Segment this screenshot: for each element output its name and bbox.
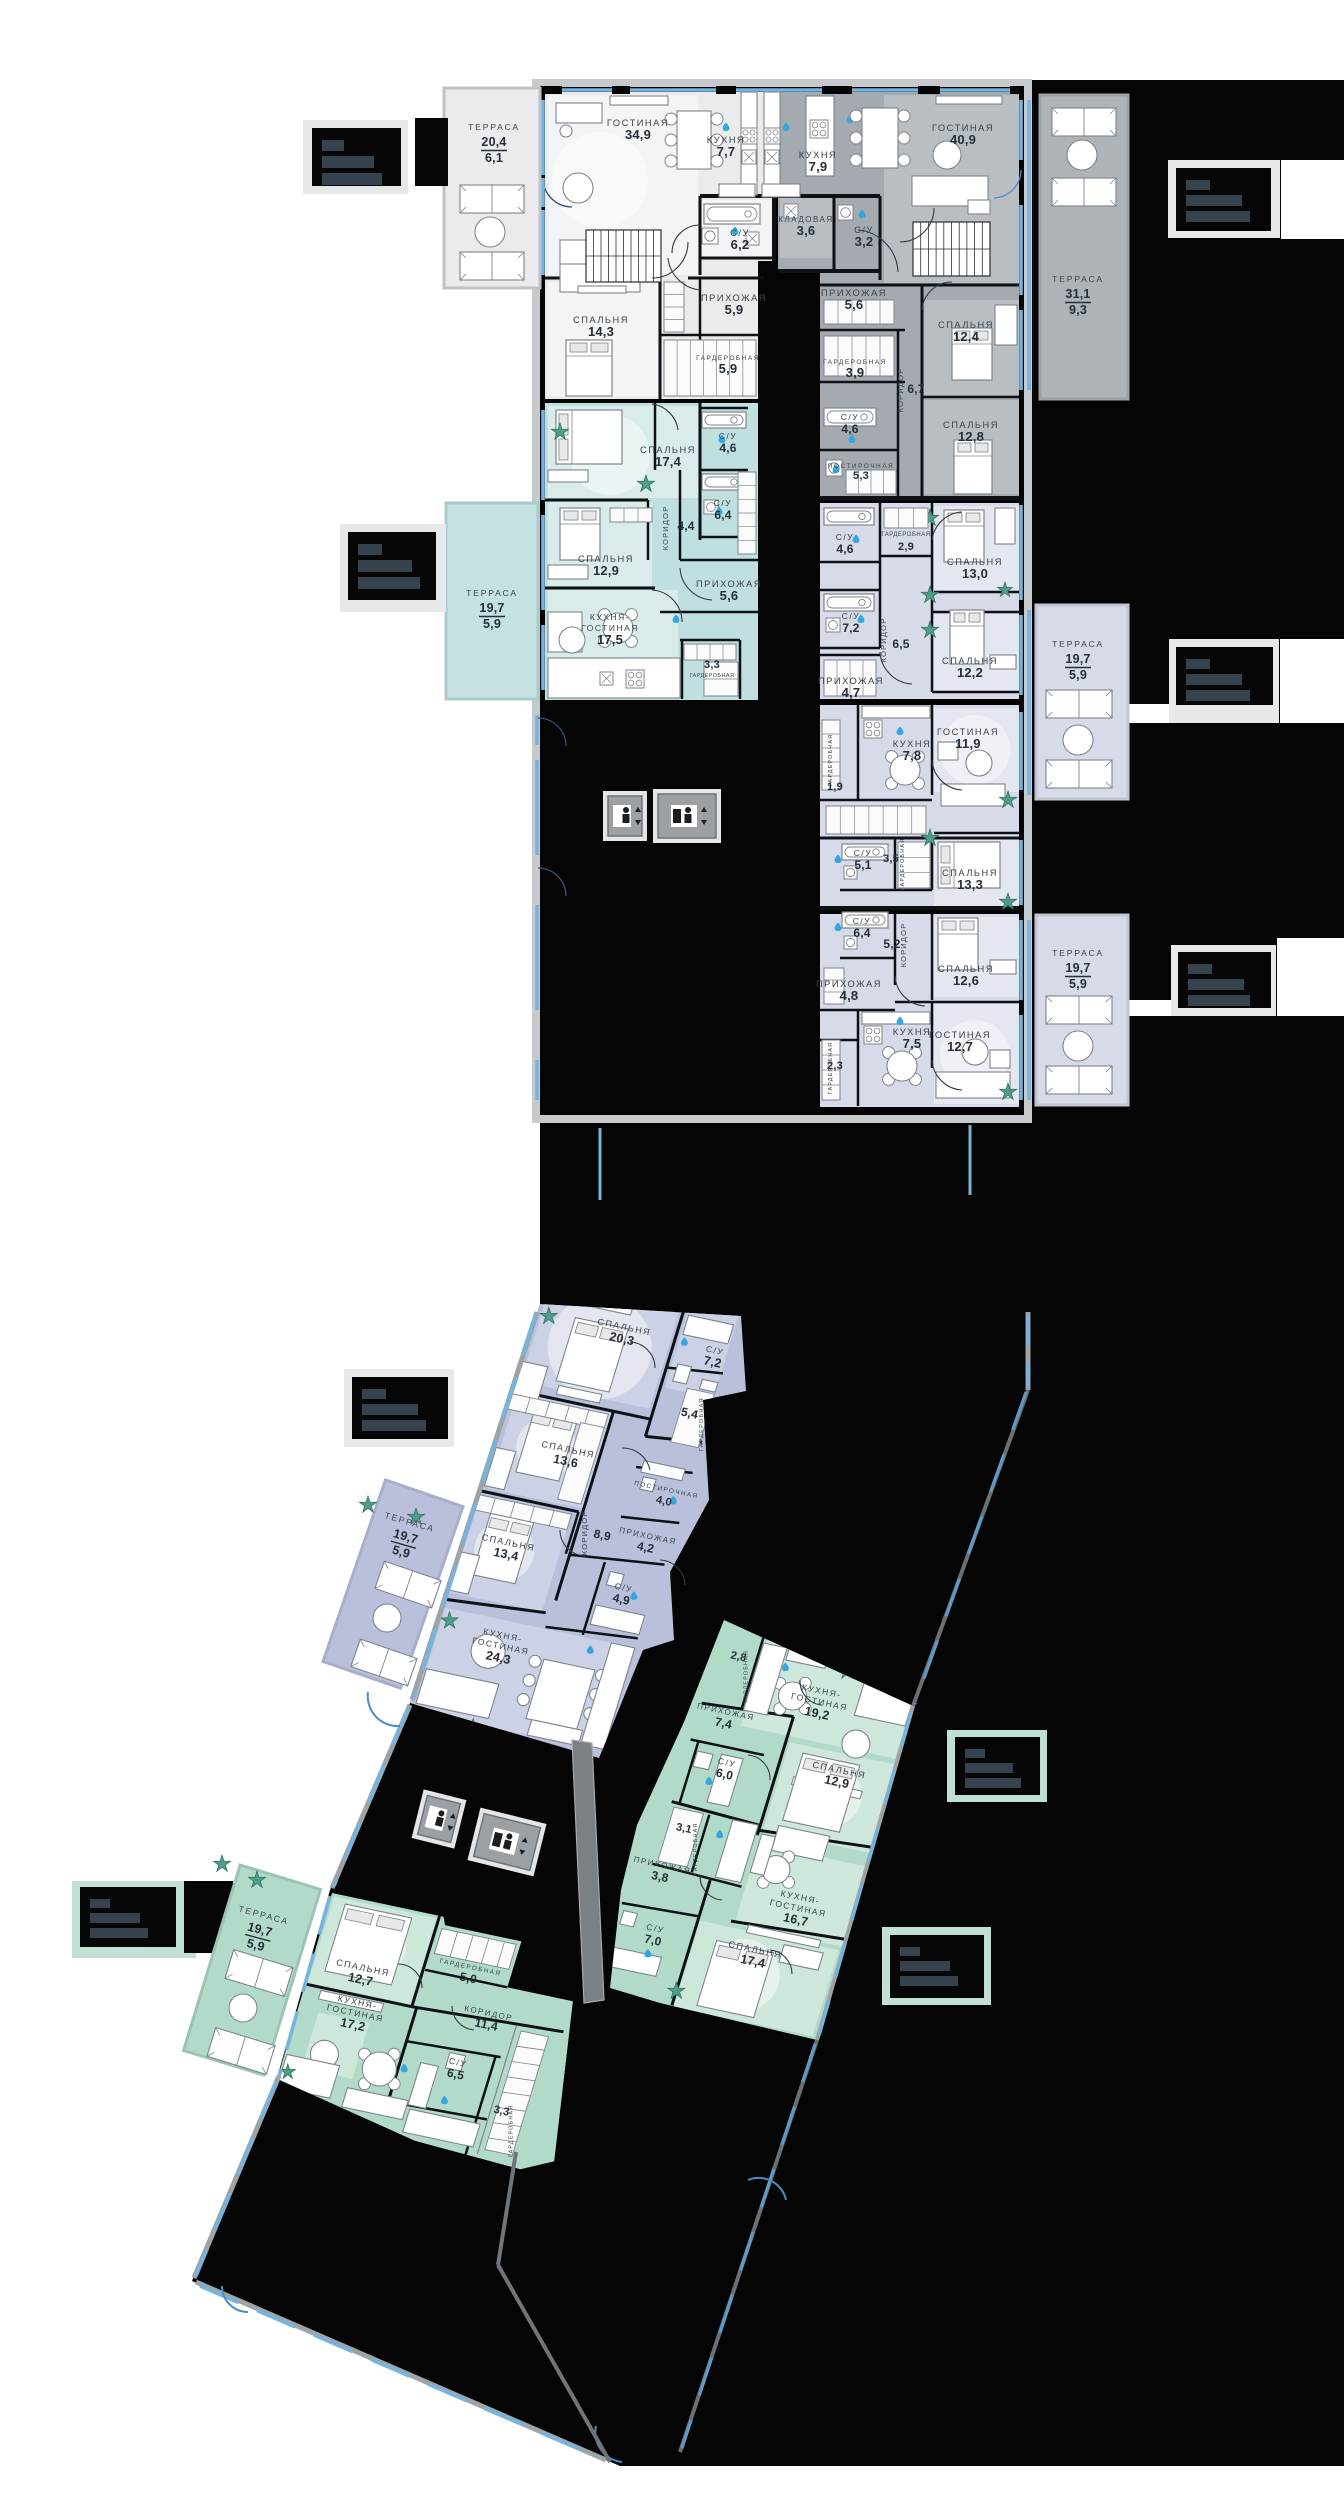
svg-text:17,4: 17,4 — [655, 454, 682, 469]
svg-text:4,6: 4,6 — [836, 542, 853, 556]
svg-text:6,1: 6,1 — [485, 151, 503, 165]
svg-text:КОРИДОР: КОРИДОР — [580, 1510, 589, 1555]
svg-text:ТЕРРАСА: ТЕРРАСА — [468, 122, 520, 132]
svg-text:4,6: 4,6 — [719, 441, 736, 455]
svg-text:5,6: 5,6 — [845, 297, 864, 312]
svg-text:5,3: 5,3 — [853, 470, 869, 482]
svg-text:12,9: 12,9 — [593, 563, 619, 578]
svg-text:С/У: С/У — [836, 532, 854, 542]
svg-text:ГАРДЕРОБНАЯ: ГАРДЕРОБНАЯ — [690, 673, 735, 679]
svg-text:19,7: 19,7 — [479, 601, 504, 615]
svg-text:ТЕРРАСА: ТЕРРАСА — [466, 588, 518, 598]
svg-text:С/У: С/У — [841, 412, 859, 422]
svg-text:14,3: 14,3 — [588, 324, 614, 339]
svg-text:5,9: 5,9 — [719, 361, 738, 376]
svg-text:7,9: 7,9 — [809, 159, 828, 174]
svg-text:7,8: 7,8 — [903, 748, 922, 763]
svg-text:6,4: 6,4 — [714, 508, 731, 522]
svg-text:19,7: 19,7 — [1065, 961, 1090, 975]
svg-text:5,9: 5,9 — [1069, 668, 1087, 682]
svg-text:12,4: 12,4 — [953, 329, 980, 344]
svg-text:2,9: 2,9 — [898, 541, 914, 553]
svg-text:ГАРДЕРОБНАЯ: ГАРДЕРОБНАЯ — [900, 838, 906, 890]
svg-text:6,7: 6,7 — [907, 382, 924, 396]
svg-text:20,4: 20,4 — [481, 135, 506, 149]
svg-text:С/У: С/У — [853, 916, 871, 926]
svg-text:С/У: С/У — [719, 431, 737, 441]
svg-text:17,5: 17,5 — [597, 632, 623, 647]
svg-text:40,9: 40,9 — [950, 132, 976, 147]
svg-text:1,9: 1,9 — [827, 781, 843, 793]
svg-text:13,0: 13,0 — [962, 566, 988, 581]
svg-text:4,4: 4,4 — [677, 519, 694, 533]
svg-text:34,9: 34,9 — [625, 127, 651, 142]
svg-text:ТЕРРАСА: ТЕРРАСА — [1052, 274, 1104, 284]
svg-text:19,7: 19,7 — [1065, 652, 1090, 666]
svg-text:5,9: 5,9 — [1069, 977, 1087, 991]
svg-text:3,3: 3,3 — [704, 659, 720, 671]
svg-text:ГАРДЕРОБНАЯ: ГАРДЕРОБНАЯ — [744, 1650, 750, 1702]
svg-text:6,5: 6,5 — [892, 637, 909, 651]
svg-text:5,6: 5,6 — [720, 588, 739, 603]
svg-text:7,5: 7,5 — [903, 1036, 922, 1051]
svg-text:ТЕРРАСА: ТЕРРАСА — [1052, 639, 1104, 649]
svg-text:4,8: 4,8 — [840, 988, 859, 1003]
svg-text:2,3: 2,3 — [827, 1060, 843, 1072]
svg-text:9,3: 9,3 — [1069, 303, 1087, 317]
svg-text:6,2: 6,2 — [731, 237, 750, 252]
svg-text:12,8: 12,8 — [958, 429, 984, 444]
svg-text:12,2: 12,2 — [957, 665, 983, 680]
svg-text:6,4: 6,4 — [853, 926, 870, 940]
svg-text:ГАРДЕРОБНАЯ: ГАРДЕРОБНАЯ — [699, 1397, 705, 1451]
svg-text:4,7: 4,7 — [842, 685, 861, 700]
svg-text:7,7: 7,7 — [717, 144, 736, 159]
svg-text:7,2: 7,2 — [842, 621, 859, 635]
svg-text:ГАРДЕРОБНАЯ: ГАРДЕРОБНАЯ — [881, 532, 930, 538]
svg-text:ГАРДЕРОБНАЯ: ГАРДЕРОБНАЯ — [508, 2105, 514, 2157]
svg-text:ТЕРРАСА: ТЕРРАСА — [1052, 948, 1104, 958]
svg-text:С/У: С/У — [714, 498, 732, 508]
svg-text:5,2: 5,2 — [883, 937, 900, 951]
svg-text:КОРИДОР: КОРИДОР — [661, 506, 670, 551]
svg-text:3,5: 3,5 — [883, 853, 899, 865]
svg-text:С/У: С/У — [842, 611, 860, 621]
svg-text:4,6: 4,6 — [841, 422, 858, 436]
svg-text:КОРИДОР: КОРИДОР — [896, 368, 905, 413]
svg-text:13,3: 13,3 — [957, 877, 983, 892]
svg-text:ГАРДЕРОБНАЯ: ГАРДЕРОБНАЯ — [828, 734, 834, 786]
svg-text:5,9: 5,9 — [725, 302, 744, 317]
svg-text:3,6: 3,6 — [797, 223, 816, 238]
svg-text:ГАРДЕРОБНАЯ: ГАРДЕРОБНАЯ — [693, 1822, 699, 1874]
svg-text:5,9: 5,9 — [483, 617, 501, 631]
svg-text:С/У: С/У — [854, 848, 872, 858]
svg-text:12,6: 12,6 — [953, 973, 979, 988]
svg-text:3,9: 3,9 — [846, 365, 865, 380]
svg-text:ПОСТИРОЧНАЯ: ПОСТИРОЧНАЯ — [828, 463, 895, 470]
svg-text:11,9: 11,9 — [955, 736, 980, 751]
svg-text:3,2: 3,2 — [855, 234, 874, 249]
svg-text:12,7: 12,7 — [947, 1039, 973, 1054]
svg-text:КУХНЯ-: КУХНЯ- — [590, 612, 630, 622]
svg-text:5,1: 5,1 — [854, 858, 871, 872]
svg-text:31,1: 31,1 — [1065, 287, 1090, 301]
